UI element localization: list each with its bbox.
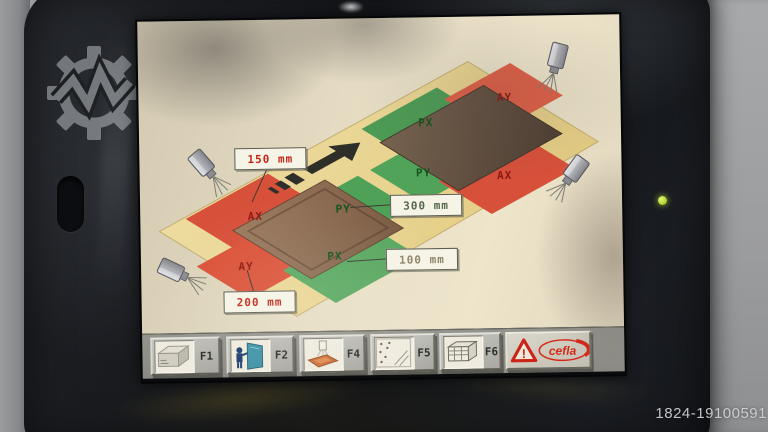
zone-label-outfeed-ax: AX	[497, 169, 512, 182]
glare-spot	[338, 1, 364, 13]
f1-label: F1	[194, 339, 219, 373]
machineseeker-gear-watermark-icon	[44, 42, 144, 148]
zone-label-outfeed-px: PX	[418, 116, 433, 129]
spray-gun-icon	[155, 257, 208, 295]
process-diagram: AX PY AY PX PX AY PY AX	[137, 14, 624, 334]
zone-label-infeed-ay: AY	[238, 260, 253, 273]
screen-diagram-page: AX PY AY PX PX AY PY AX 150 mm 300 mm 10…	[137, 14, 624, 334]
f2-button[interactable]: F2	[226, 335, 295, 374]
spray-pattern-icon	[374, 336, 415, 370]
zone-label-infeed-ax: AX	[248, 210, 263, 223]
measurement-ax-offset[interactable]: 150 mm	[234, 147, 306, 170]
zone-label-infeed-px: PX	[327, 250, 342, 263]
measurement-ay-offset[interactable]: 200 mm	[223, 290, 295, 313]
machine-module-icon	[154, 340, 195, 374]
warning-mark: !	[522, 347, 526, 361]
bezel-slot	[57, 176, 84, 232]
cabinet-wall-right	[706, 0, 768, 432]
hmi-panel-photo: AX PY AY PX PX AY PY AX 150 mm 300 mm 10…	[0, 0, 768, 432]
measurement-px-offset[interactable]: 100 mm	[386, 248, 458, 271]
zone-label-outfeed-py: PY	[416, 166, 431, 179]
spray-coating-icon	[303, 338, 344, 372]
touchscreen: AX PY AY PX PX AY PY AX 150 mm 300 mm 10…	[135, 12, 627, 384]
zone-label-outfeed-ay: AY	[497, 91, 512, 104]
f6-button[interactable]: F6	[439, 332, 502, 371]
power-led	[658, 196, 667, 205]
operator-panel-icon	[230, 339, 271, 373]
spray-gun-icon	[185, 148, 232, 198]
f5-label: F5	[414, 335, 434, 369]
measurement-py-offset[interactable]: 300 mm	[390, 194, 462, 217]
warning-triangle-icon: !	[510, 336, 537, 366]
brand-panel: ! cefla	[505, 331, 592, 370]
cefla-logo-text: cefla	[549, 344, 577, 358]
function-key-toolbar: F1 F2	[142, 326, 625, 379]
f4-label: F4	[343, 336, 364, 370]
f2-label: F2	[270, 337, 293, 371]
zone-label-infeed-py: PY	[335, 202, 350, 215]
f6-label: F6	[483, 334, 500, 368]
photo-watermark-id: 1824-19100591	[655, 405, 767, 422]
dryer-rack-icon	[443, 335, 484, 369]
f4-button[interactable]: F4	[299, 334, 366, 373]
f1-button[interactable]: F1	[150, 337, 221, 376]
cefla-logo: cefla	[537, 334, 590, 367]
f5-button[interactable]: F5	[370, 333, 436, 372]
